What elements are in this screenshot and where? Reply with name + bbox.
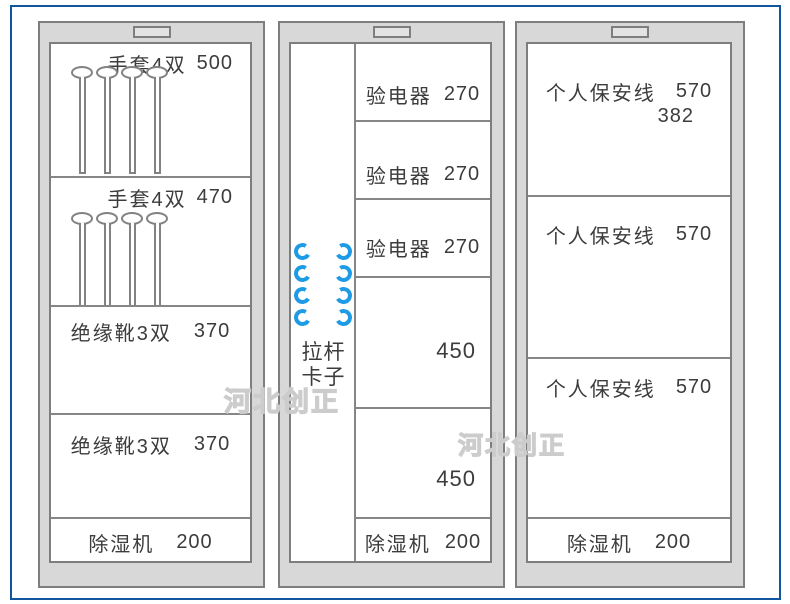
- compartment-boots-370-b: 绝缘靴3双 370: [51, 413, 250, 517]
- glove-peg-icon: [121, 212, 143, 307]
- compartment-dimension: 470: [197, 186, 233, 209]
- rod-clamp-column: 拉杆 卡子: [291, 44, 356, 561]
- compartment-label: 手套4双: [108, 183, 187, 212]
- cabinet-handle-icon: [611, 26, 649, 38]
- compartment-label: 验电器: [366, 160, 432, 189]
- compartment-safety-line-b: 个人保安线 570: [528, 195, 730, 357]
- compartment-label: 个人保安线: [546, 220, 656, 249]
- compartment-dimension: 270: [444, 83, 480, 106]
- compartment-dimension-secondary: 382: [658, 105, 694, 128]
- rod-clamp-clip-icon: [333, 307, 354, 328]
- glove-peg-icon: [96, 212, 118, 307]
- rod-clamp-clip-icon: [292, 241, 313, 262]
- compartment-label: 验电器: [366, 233, 432, 262]
- compartment-dehumidifier: 除湿机 200: [51, 517, 250, 561]
- compartment-450-b: 450: [356, 407, 490, 517]
- compartment-dimension: 570: [676, 376, 712, 399]
- glove-peg-icon: [71, 212, 93, 307]
- cabinet-middle-panel: 拉杆 卡子 验电器 270 验电器 270 验电器 270: [289, 42, 492, 563]
- rod-clamp-clip-icon: [333, 285, 354, 306]
- compartment-gloves-500: 手套4双 500: [51, 44, 250, 176]
- compartment-dimension: 270: [444, 236, 480, 259]
- compartment-tester-270-a: 验电器 270: [356, 44, 490, 120]
- compartment-label: 绝缘靴3双: [71, 430, 172, 459]
- cabinet-middle: 拉杆 卡子 验电器 270 验电器 270 验电器 270: [278, 21, 505, 588]
- compartment-label: 除湿机: [567, 528, 633, 557]
- rod-clamp-clip-icon: [292, 285, 313, 306]
- compartment-dimension: 500: [197, 52, 233, 75]
- rod-clamp-label-line1: 拉杆: [291, 340, 356, 365]
- compartment-label: 验电器: [366, 80, 432, 109]
- cabinet-right: 个人保安线 570 382 个人保安线 570 个人保安线 570: [515, 21, 745, 588]
- compartment-dimension: 450: [436, 466, 476, 492]
- compartment-label: 除湿机: [88, 528, 154, 557]
- compartment-dimension: 200: [655, 531, 691, 554]
- watermark: 河北创正: [224, 380, 340, 419]
- compartment-dimension: 450: [436, 338, 476, 364]
- glove-peg-icon: [121, 66, 143, 174]
- compartment-tester-270-c: 验电器 270: [356, 198, 490, 276]
- compartment-dehumidifier: 除湿机 200: [356, 517, 490, 561]
- compartment-tester-270-b: 验电器 270: [356, 120, 490, 198]
- compartment-dimension: 570: [676, 80, 712, 103]
- rod-clamp-clip-icon: [292, 263, 313, 284]
- watermark: 河北创正: [458, 426, 566, 462]
- cabinet-handle-icon: [133, 26, 171, 38]
- compartment-gloves-470: 手套4双 470: [51, 176, 250, 305]
- compartment-dimension: 570: [676, 223, 712, 246]
- cabinet-handle-icon: [373, 26, 411, 38]
- rod-clamp-clip-icon: [333, 263, 354, 284]
- rod-clamp-clip-icon: [292, 307, 313, 328]
- compartment-dimension: 270: [444, 163, 480, 186]
- compartment-450-a: 450: [356, 276, 490, 407]
- rod-clamp-clip-icon: [333, 241, 354, 262]
- compartment-boots-370-a: 绝缘靴3双 370: [51, 305, 250, 413]
- compartment-dimension: 370: [194, 320, 230, 343]
- glove-peg-icon: [71, 66, 93, 174]
- cabinet-left-panel: 手套4双 500 手套4双 470 绝缘靴3: [49, 42, 252, 563]
- compartment-dimension: 370: [194, 433, 230, 456]
- cabinet-layout-diagram: 手套4双 500 手套4双 470 绝缘靴3: [0, 0, 790, 604]
- compartment-safety-line-a: 个人保安线 570 382: [528, 44, 730, 195]
- glove-peg-icon: [96, 66, 118, 174]
- cabinet-right-panel: 个人保安线 570 382 个人保安线 570 个人保安线 570: [526, 42, 732, 563]
- compartment-label: 个人保安线: [546, 373, 656, 402]
- cabinet-left: 手套4双 500 手套4双 470 绝缘靴3: [38, 21, 265, 588]
- compartment-dimension: 200: [176, 531, 212, 554]
- compartment-dimension: 200: [445, 531, 481, 554]
- glove-peg-icon: [146, 66, 168, 174]
- compartment-label: 除湿机: [365, 528, 431, 557]
- glove-peg-icon: [146, 212, 168, 307]
- compartment-label: 绝缘靴3双: [71, 317, 172, 346]
- compartment-dehumidifier: 除湿机 200: [528, 517, 730, 561]
- compartment-label: 个人保安线: [546, 77, 656, 106]
